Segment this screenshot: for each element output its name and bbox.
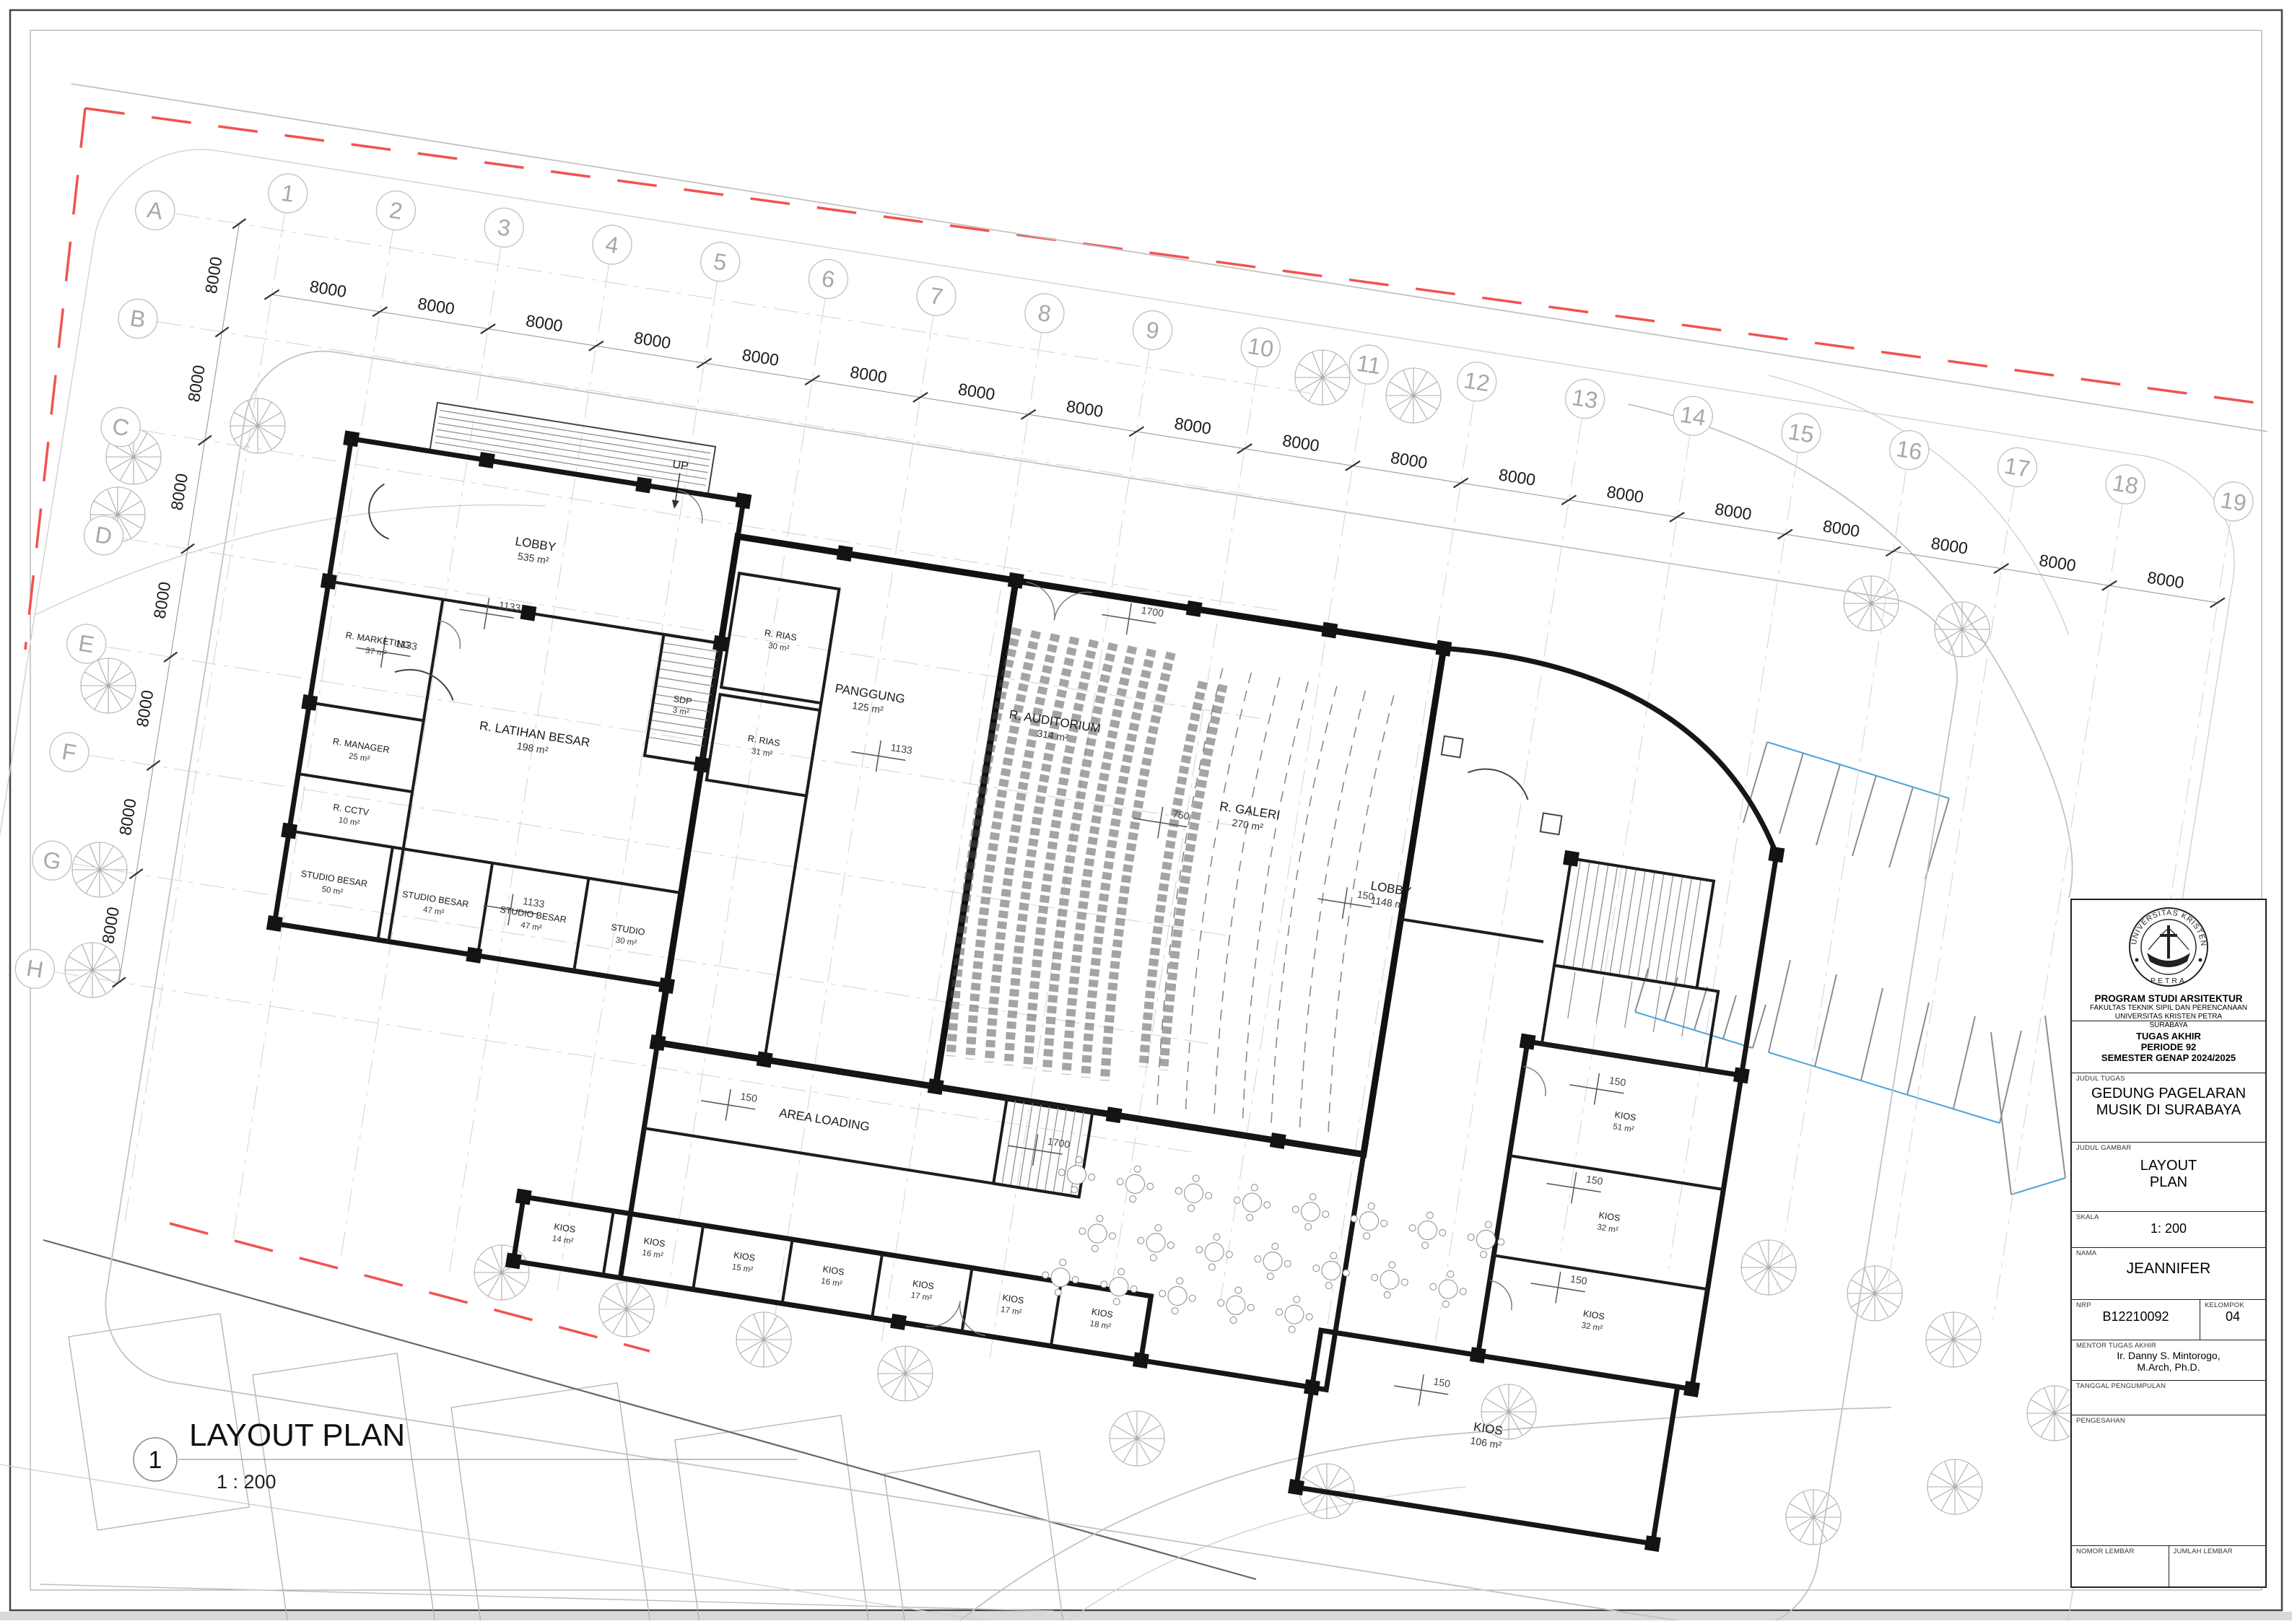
dimension-label: 8000 xyxy=(2038,551,2078,575)
assignment-period: PERIODE 92 xyxy=(2076,1042,2261,1052)
room-area: 50 m² xyxy=(321,885,344,896)
dimension-label: 8000 xyxy=(417,294,456,318)
room-area: 32 m² xyxy=(1596,1223,1618,1234)
room-area: 10 m² xyxy=(338,816,360,828)
grid-col-label: 11 xyxy=(1355,350,1382,380)
tanggal-section: TANGGAL PENGUMPULAN xyxy=(2072,1381,2265,1415)
dimension-label: 8000 xyxy=(98,906,123,946)
assignment-title: TUGAS AKHIR xyxy=(2076,1031,2261,1042)
grid-col-label: 15 xyxy=(1787,418,1816,448)
sheet-frame xyxy=(0,10,2292,1620)
room-label-kios-row: KIOS xyxy=(912,1278,935,1292)
room-area: 17 m² xyxy=(910,1291,933,1303)
room-area: 16 m² xyxy=(820,1277,842,1288)
room-label-rias2: R. RIAS xyxy=(747,733,781,748)
university-name: UNIVERSITAS KRISTEN PETRA xyxy=(2076,1013,2261,1021)
nrp-value: B12210092 xyxy=(2076,1309,2195,1324)
assignment-semester: SEMESTER GENAP 2024/2025 xyxy=(2076,1052,2261,1063)
level-value: 150 xyxy=(1433,1376,1452,1389)
drawing-number: 1 xyxy=(149,1446,162,1474)
room-area: 32 m² xyxy=(1581,1322,1603,1333)
grid-col-label: 19 xyxy=(2219,486,2249,516)
judul-gambar-label: JUDUL GAMBAR xyxy=(2076,1144,2261,1152)
room-label-kios32a: KIOS xyxy=(1598,1210,1621,1223)
room-label-manager: R. MANAGER xyxy=(332,736,390,755)
nomor-lembar-label: NOMOR LEMBAR xyxy=(2076,1547,2164,1555)
kelompok-value: 04 xyxy=(2205,1309,2261,1324)
dimension-label: 8000 xyxy=(1281,431,1321,455)
level-value: 150 xyxy=(1585,1173,1604,1187)
dimension-label: 8000 xyxy=(201,256,226,295)
dimension-label: 8000 xyxy=(116,798,140,837)
project-title-line2: MUSIK DI SURABAYA xyxy=(2076,1102,2261,1119)
room-label-kios-row: KIOS xyxy=(733,1250,756,1264)
nrp-label: NRP xyxy=(2076,1301,2195,1309)
room-area: 31 m² xyxy=(751,747,773,759)
pengesahan-label: PENGESAHAN xyxy=(2076,1417,2261,1425)
room-label-kios-row: KIOS xyxy=(1091,1306,1114,1320)
room-area: 16 m² xyxy=(642,1249,664,1260)
dimension-label: 8000 xyxy=(308,276,348,301)
nrp-kelompok-section: NRP B12210092 KELOMPOK 04 xyxy=(2072,1300,2265,1340)
tanggal-label: TANGGAL PENGUMPULAN xyxy=(2076,1382,2261,1390)
level-value: 1133 xyxy=(522,895,545,910)
sheet-title-line1: LAYOUT xyxy=(2076,1158,2261,1174)
jumlah-lembar-cell: JUMLAH LEMBAR xyxy=(2169,1546,2266,1586)
grid-col-label: 18 xyxy=(2111,470,2140,499)
jumlah-lembar-label: JUMLAH LEMBAR xyxy=(2174,1547,2262,1555)
dimension-label: 8000 xyxy=(1497,465,1537,489)
room-label-area-loading: AREA LOADING xyxy=(778,1106,871,1134)
up-label: UP xyxy=(671,458,689,473)
skala-value: 1: 200 xyxy=(2076,1221,2261,1236)
room-area: 51 m² xyxy=(1612,1122,1634,1134)
room-label-marketing: R. MARKETING xyxy=(345,630,411,650)
program-name: PROGRAM STUDI ARSITEKTUR xyxy=(2076,993,2261,1004)
grid-letter-bubbles: A B C D E F G H xyxy=(12,188,177,992)
dimension-label: 8000 xyxy=(849,362,889,387)
site-boundary xyxy=(25,108,2267,1351)
judul-tugas-label: JUDUL TUGAS xyxy=(2076,1075,2261,1083)
layout-plan-sheet: 1 2 3 4 5 6 7 8 9 10 11 12 13 14 15 16 1… xyxy=(0,0,2292,1620)
title-block: UNIVERSITAS KRISTEN PETRA PROGRAM STUDI … xyxy=(2070,899,2267,1588)
dimension-label: 8000 xyxy=(1173,414,1213,438)
nama-label: NAMA xyxy=(2076,1249,2261,1257)
grid-col-label: 13 xyxy=(1570,384,1600,414)
room-area: 47 m² xyxy=(422,906,445,917)
room-label-kios32b: KIOS xyxy=(1582,1309,1605,1322)
skala-section: SKALA 1: 200 xyxy=(2072,1212,2265,1248)
up-arrow-icon xyxy=(671,499,679,509)
mentor-label: MENTOR TUGAS AKHIR xyxy=(2076,1342,2261,1350)
nomor-lembar-cell: NOMOR LEMBAR xyxy=(2072,1546,2169,1586)
room-label-kios51: KIOS xyxy=(1614,1109,1637,1123)
mentor-value-line1: Ir. Danny S. Mintorogo, xyxy=(2076,1350,2261,1361)
university-logo: UNIVERSITAS KRISTEN PETRA xyxy=(2126,904,2211,990)
cross-icon xyxy=(2160,925,2177,959)
level-value: 1133 xyxy=(890,741,913,756)
level-value: 150 xyxy=(1569,1272,1588,1286)
internal-roads xyxy=(0,84,2267,1620)
dimension-chain-top: 8000 8000 8000 8000 8000 8000 8000 8000 … xyxy=(264,270,2227,609)
grid-col-label: 10 xyxy=(1246,333,1276,362)
grid-col-label: 17 xyxy=(2003,453,2032,482)
dimension-label: 8000 xyxy=(133,689,157,728)
nrp-cell: NRP B12210092 xyxy=(2072,1300,2200,1340)
dimension-label: 8000 xyxy=(2146,568,2186,593)
dimension-label: 8000 xyxy=(632,328,672,353)
kelompok-cell: KELOMPOK 04 xyxy=(2200,1300,2265,1340)
room-area: 18 m² xyxy=(1089,1319,1112,1331)
kelompok-label: KELOMPOK xyxy=(2205,1301,2261,1309)
building: UP xyxy=(204,389,1821,1554)
grid-col-label: 12 xyxy=(1462,367,1491,396)
sheet-title-line2: PLAN xyxy=(2076,1174,2261,1191)
room-label-kios-row: KIOS xyxy=(822,1264,845,1278)
dimension-label: 8000 xyxy=(167,472,191,512)
project-title-line1: GEDUNG PAGELARAN xyxy=(2076,1086,2261,1102)
nama-value: JEANNIFER xyxy=(2076,1260,2261,1278)
room-label-kios-row: KIOS xyxy=(1002,1293,1025,1306)
room-area: 30 m² xyxy=(615,936,637,948)
level-value: 1133 xyxy=(498,599,521,614)
room-label-kios-row: KIOS xyxy=(643,1236,666,1249)
room-area: 25 m² xyxy=(348,752,370,764)
logo-bottom-text: PETRA xyxy=(2151,977,2187,985)
dimension-label: 8000 xyxy=(184,364,209,403)
room-area: 3 m² xyxy=(672,706,690,717)
room-label-studio1: STUDIO BESAR xyxy=(300,868,368,889)
dimension-label: 8000 xyxy=(741,345,780,370)
judul-gambar-section: JUDUL GAMBAR LAYOUT PLAN xyxy=(2072,1143,2265,1212)
room-area: 14 m² xyxy=(552,1234,574,1246)
faculty-name: FAKULTAS TEKNIK SIPIL DAN PERENCANAAN xyxy=(2076,1004,2261,1013)
level-value: 150 xyxy=(1608,1074,1627,1088)
room-label-sdp: SDP xyxy=(673,694,693,707)
level-value: 150 xyxy=(740,1090,759,1104)
dimension-label: 8000 xyxy=(1605,482,1645,507)
drawing-title-text: LAYOUT PLAN xyxy=(189,1418,405,1453)
dimension-label: 8000 xyxy=(1390,448,1429,473)
dimension-label: 8000 xyxy=(1821,516,1861,541)
skala-label: SKALA xyxy=(2076,1213,2261,1221)
nama-section: NAMA JEANNIFER xyxy=(2072,1248,2265,1300)
grid-col-label: 14 xyxy=(1678,401,1708,431)
dimension-label: 8000 xyxy=(1065,396,1104,421)
pengesahan-section: PENGESAHAN xyxy=(2072,1415,2265,1546)
room-area: 15 m² xyxy=(731,1263,754,1275)
assignment-section: TUGAS AKHIR PERIODE 92 SEMESTER GENAP 20… xyxy=(2072,1021,2265,1073)
room-label-cctv: R. CCTV xyxy=(332,802,370,818)
dimension-label: 8000 xyxy=(1714,499,1753,524)
room-area: 47 m² xyxy=(520,921,542,933)
dimension-chain-left: 8000 8000 8000 8000 8000 8000 8000 xyxy=(92,214,245,989)
grid-col-label: 16 xyxy=(1894,435,1924,465)
room-label-kios-row: KIOS xyxy=(553,1221,576,1235)
dimension-label: 8000 xyxy=(957,380,997,404)
room-label-studio2: STUDIO BESAR xyxy=(401,889,469,909)
drawing-scale: 1 : 200 xyxy=(217,1471,276,1493)
dimension-label: 8000 xyxy=(1930,533,1969,558)
lembar-section: NOMOR LEMBAR JUMLAH LEMBAR xyxy=(2072,1546,2265,1586)
dimension-label: 8000 xyxy=(525,311,565,336)
dimension-label: 8000 xyxy=(150,580,175,620)
mentor-section: MENTOR TUGAS AKHIR Ir. Danny S. Mintorog… xyxy=(2072,1340,2265,1381)
room-area: 17 m² xyxy=(1000,1305,1022,1317)
title-block-logo-section: UNIVERSITAS KRISTEN PETRA PROGRAM STUDI … xyxy=(2072,900,2265,1021)
mentor-value-line2: M.Arch, Ph.D. xyxy=(2076,1361,2261,1373)
site-plan-rotated-group: 1 2 3 4 5 6 7 8 9 10 11 12 13 14 15 16 1… xyxy=(0,84,2267,1620)
judul-tugas-section: JUDUL TUGAS GEDUNG PAGELARAN MUSIK DI SU… xyxy=(2072,1073,2265,1143)
level-value: 1700 xyxy=(1047,1135,1071,1151)
